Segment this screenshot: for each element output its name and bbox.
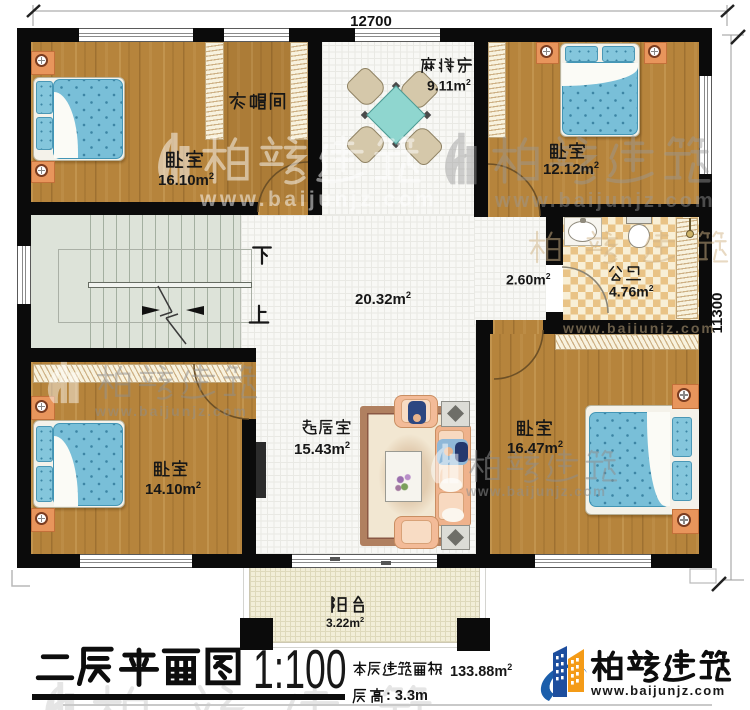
svg-text:12700: 12700 bbox=[350, 13, 392, 30]
svg-text:www.baijunjz.com: www.baijunjz.com bbox=[94, 403, 248, 419]
svg-text:www.baijunjz.com: www.baijunjz.com bbox=[465, 484, 607, 499]
svg-text:www.baijunjz.com: www.baijunjz.com bbox=[562, 320, 716, 336]
svg-text:www.baijunjz.com: www.baijunjz.com bbox=[494, 190, 716, 212]
svg-text:www.baijunjz.com: www.baijunjz.com bbox=[199, 188, 437, 211]
